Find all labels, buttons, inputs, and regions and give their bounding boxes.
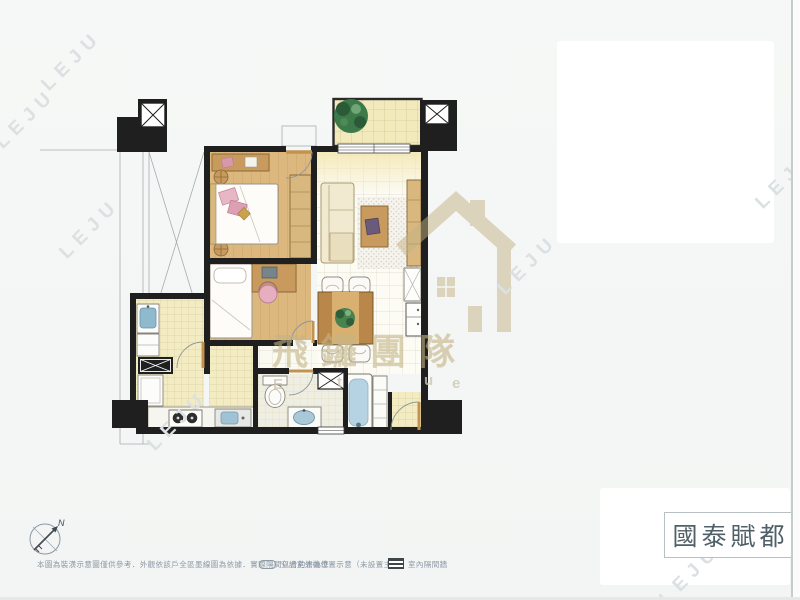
rear-balcony-floor <box>392 392 421 427</box>
pillow <box>214 268 246 283</box>
bath-cabinet <box>373 376 387 430</box>
latin-letter: e <box>452 375 460 392</box>
partition-wall-legend-icon <box>388 558 404 569</box>
utility-shaft-x <box>138 357 173 374</box>
desk <box>212 154 269 171</box>
balcony-plant <box>334 99 368 133</box>
desk-pad <box>245 157 257 167</box>
page-margin <box>793 0 800 600</box>
computer <box>262 267 277 278</box>
coffee-table <box>361 206 388 247</box>
wardrobe <box>290 175 311 258</box>
balcony-window <box>338 144 410 153</box>
desk-item <box>221 157 234 168</box>
second-bed <box>210 264 252 338</box>
bathroom-window <box>318 427 344 434</box>
desk-chair <box>259 282 277 303</box>
latin-letter: t <box>337 374 342 391</box>
north-label: N <box>58 518 65 528</box>
master-bed <box>210 184 278 244</box>
table-plant <box>335 308 355 328</box>
elevator-shaft-x <box>141 103 165 127</box>
floor-plan: 飛鑼團隊 E t u e N <box>0 0 800 600</box>
page-edge-line <box>791 0 793 600</box>
partition-wall-legend-label: 室內隔間牆 <box>408 559 448 570</box>
tv-cabinet <box>407 180 421 266</box>
scanned-floorplan-page: LEJU LEJU LEJU LEJU LEJU LEJU LEJU LEJU <box>0 0 800 600</box>
team-name-watermark: 飛鑼團隊 <box>272 331 468 372</box>
tall-cabinet <box>404 268 421 301</box>
sofa <box>321 183 354 263</box>
utility-cabinet <box>137 334 159 356</box>
bathroom-vanity <box>288 407 321 428</box>
bathtub <box>345 374 372 432</box>
utility-sink <box>137 304 159 333</box>
project-title-box: 國泰賦都 <box>664 512 797 558</box>
ac-unit-legend-icon <box>259 560 276 569</box>
kitchen-sink <box>215 409 251 427</box>
north-compass: N <box>30 518 65 554</box>
elevator-shaft-x <box>425 104 449 124</box>
project-title: 國泰賦都 <box>672 517 788 553</box>
latin-letter: E <box>273 376 283 393</box>
latin-letter: u <box>424 372 433 389</box>
